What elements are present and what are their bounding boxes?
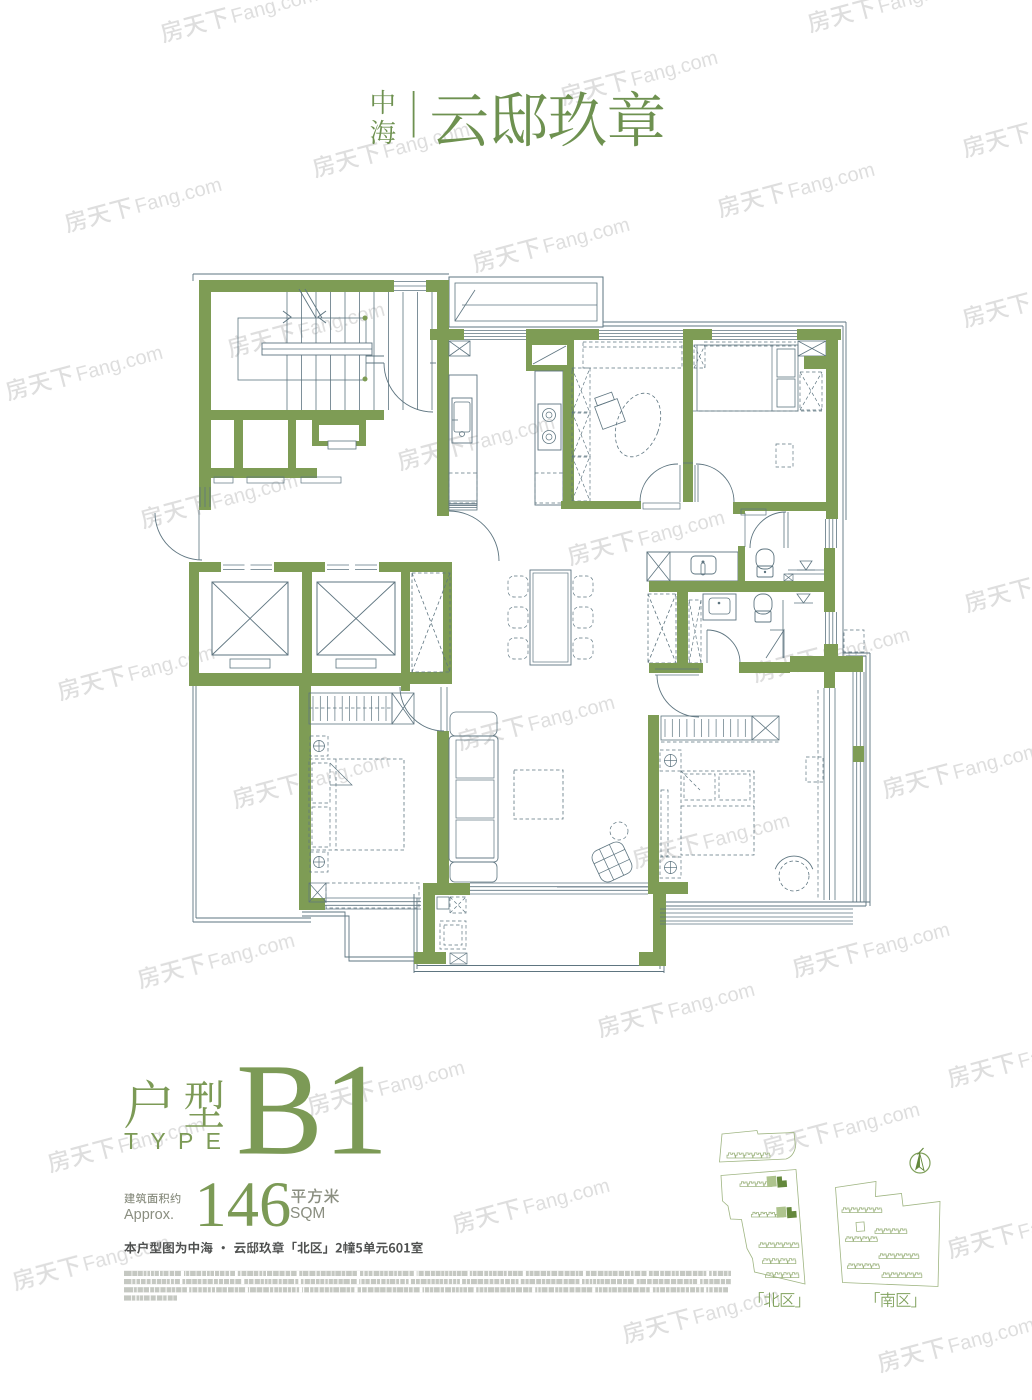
svg-text:146: 146 <box>195 1169 292 1240</box>
svg-text:Approx.: Approx. <box>124 1207 174 1223</box>
svg-text:SQM: SQM <box>290 1205 325 1222</box>
svg-text:TYPE: TYPE <box>124 1128 233 1154</box>
svg-text:B1: B1 <box>236 1038 389 1183</box>
